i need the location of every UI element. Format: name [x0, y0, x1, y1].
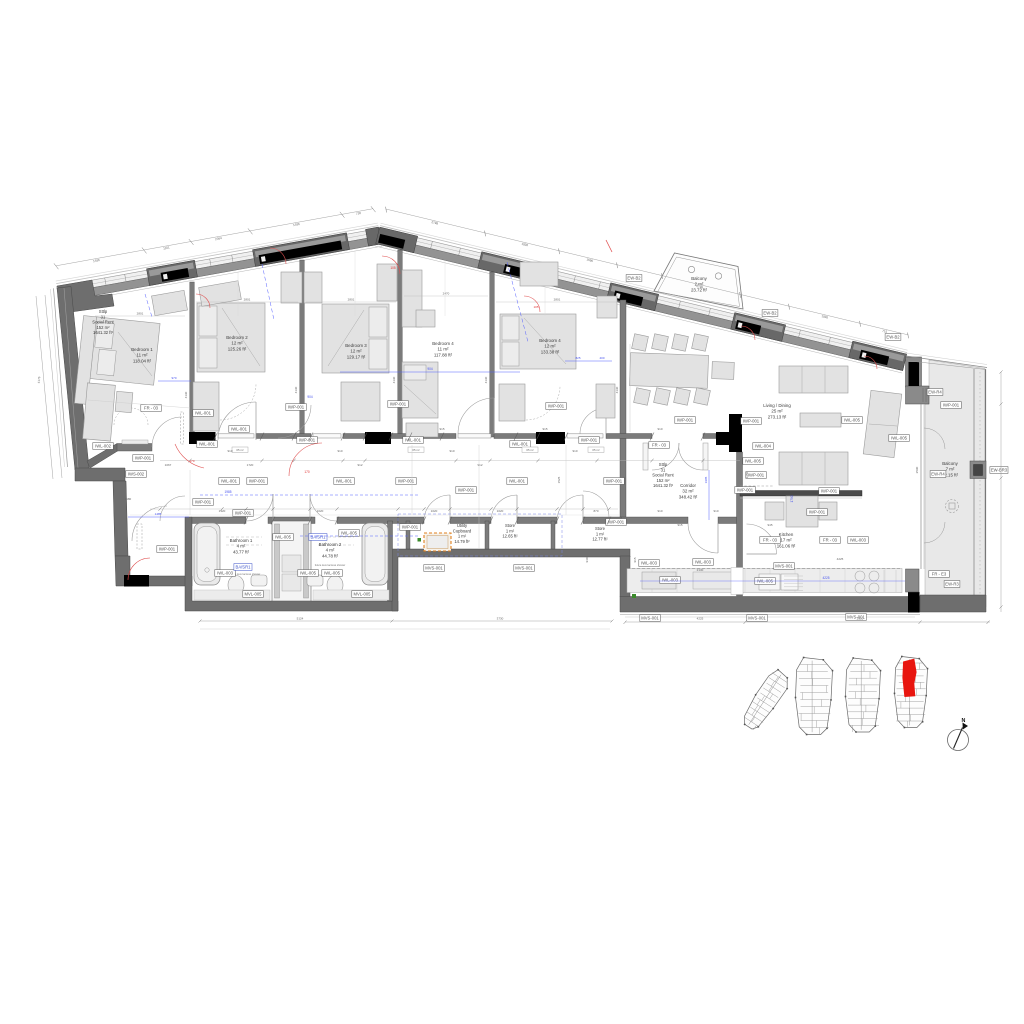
svg-text:IWP-001: IWP-001: [299, 438, 316, 443]
svg-text:Sttlp: Sttlp: [99, 309, 108, 314]
svg-text:1 m²: 1 m²: [596, 531, 605, 536]
svg-text:1020: 1020: [497, 509, 504, 513]
svg-text:IWP-001: IWP-001: [606, 479, 623, 484]
svg-text:904: 904: [307, 395, 313, 399]
svg-text:IWP-001: IWP-001: [548, 404, 565, 409]
svg-text:1020: 1020: [431, 509, 438, 513]
svg-text:Bedroom 1: Bedroom 1: [131, 347, 153, 352]
svg-text:IWS-002: IWS-002: [128, 472, 145, 477]
svg-text:1067: 1067: [165, 463, 172, 467]
svg-text:870: 870: [593, 509, 598, 513]
svg-text:825: 825: [575, 356, 580, 360]
svg-text:Bathroom 1: Bathroom 1: [230, 538, 253, 543]
svg-text:912: 912: [477, 463, 482, 467]
svg-text:2590: 2590: [915, 466, 919, 473]
svg-text:1 m²: 1 m²: [458, 534, 467, 539]
svg-text:170: 170: [189, 459, 194, 463]
svg-text:FR - 03: FR - 03: [763, 538, 778, 543]
svg-text:910: 910: [657, 427, 662, 431]
svg-text:IWL-005: IWL-005: [745, 459, 761, 464]
svg-text:2801: 2801: [554, 298, 561, 302]
svg-text:Balcony: Balcony: [691, 276, 707, 281]
svg-text:05 m²: 05 m²: [526, 448, 533, 452]
svg-text:1985: 1985: [224, 490, 231, 494]
svg-text:4225: 4225: [837, 557, 844, 561]
svg-text:915: 915: [542, 427, 547, 431]
svg-text:MVS-001: MVS-001: [515, 566, 533, 571]
svg-text:IWP-001: IWP-001: [943, 403, 960, 408]
svg-text:IWL-003: IWL-003: [641, 561, 657, 566]
svg-text:IWL-001: IWL-001: [512, 442, 528, 447]
svg-text:Social Rent: Social Rent: [652, 473, 674, 478]
svg-text:4225: 4225: [697, 617, 704, 621]
svg-text:Bedroom 2: Bedroom 2: [226, 335, 248, 340]
svg-text:IWL-003: IWL-003: [217, 571, 233, 576]
svg-text:MVS-001: MVS-001: [425, 566, 443, 571]
svg-text:MVS-001: MVS-001: [748, 616, 766, 621]
svg-text:MVS-001: MVS-001: [775, 564, 793, 569]
svg-text:IWL-003: IWL-003: [662, 578, 678, 583]
svg-text:IWL-001: IWL-001: [509, 479, 525, 484]
svg-text:1180: 1180: [125, 497, 132, 501]
svg-text:IWL-001: IWL-001: [199, 442, 215, 447]
svg-text:4130: 4130: [392, 376, 396, 383]
svg-text:MVS-001: MVS-001: [641, 616, 659, 621]
svg-text:25 m²: 25 m²: [771, 409, 783, 414]
svg-text:1905: 1905: [704, 476, 708, 483]
svg-text:IWP-001: IWP-001: [402, 525, 419, 530]
svg-text:Store: Store: [595, 526, 606, 531]
svg-text:EW-B2: EW-B2: [886, 335, 900, 340]
svg-text:4130: 4130: [615, 386, 619, 393]
svg-text:152 m²: 152 m²: [656, 478, 670, 483]
svg-text:IWP-001: IWP-001: [608, 520, 625, 525]
svg-text:IWP-001: IWP-001: [249, 479, 266, 484]
svg-text:105: 105: [533, 305, 538, 309]
svg-text:2801: 2801: [137, 312, 144, 316]
svg-text:Social Rent: Social Rent: [92, 320, 114, 325]
svg-text:FR - 03: FR - 03: [823, 538, 838, 543]
svg-text:12 m²: 12 m²: [231, 341, 243, 346]
svg-text:273.13 ft²: 273.13 ft²: [768, 414, 787, 419]
svg-text:IWP-001: IWP-001: [748, 473, 765, 478]
svg-text:05 m²: 05 m²: [412, 448, 419, 452]
svg-text:4 m²: 4 m²: [237, 544, 246, 549]
svg-text:117.88 ft²: 117.88 ft²: [434, 352, 453, 357]
svg-text:910: 910: [572, 449, 577, 453]
svg-text:IWL-001: IWL-001: [405, 438, 421, 443]
svg-text:31: 31: [661, 467, 666, 472]
svg-text:4176: 4176: [37, 376, 42, 383]
svg-text:IWL-005: IWL-005: [300, 571, 316, 576]
svg-text:910: 910: [449, 449, 454, 453]
svg-text:152 m²: 152 m²: [96, 325, 110, 330]
svg-text:Corridor: Corridor: [680, 483, 696, 488]
svg-text:BA/SR1: BA/SR1: [311, 535, 327, 540]
svg-text:Cupboard: Cupboard: [453, 528, 472, 533]
svg-text:1 m²: 1 m²: [506, 528, 515, 533]
svg-text:IWL-005: IWL-005: [844, 418, 860, 423]
svg-text:1485: 1485: [155, 512, 162, 516]
svg-text:IWL-001: IWL-001: [195, 411, 211, 416]
svg-text:Bedroom 4: Bedroom 4: [539, 338, 561, 343]
svg-text:3730: 3730: [497, 617, 504, 621]
svg-text:910: 910: [337, 449, 342, 453]
svg-text:910: 910: [227, 449, 232, 453]
svg-text:2801: 2801: [348, 298, 355, 302]
svg-text:EW-B2: EW-B2: [627, 276, 641, 281]
svg-text:1720: 1720: [247, 463, 254, 467]
svg-text:170: 170: [304, 470, 310, 474]
svg-text:1641.32 ft²: 1641.32 ft²: [93, 330, 114, 335]
svg-text:IWL-005: IWL-005: [324, 571, 340, 576]
svg-text:7 m²: 7 m²: [946, 467, 955, 472]
svg-text:915: 915: [439, 427, 444, 431]
svg-text:EW-BR3: EW-BR3: [991, 468, 1008, 473]
svg-text:2470: 2470: [443, 292, 450, 296]
svg-text:FR - E3: FR - E3: [932, 572, 947, 577]
svg-text:12 m²: 12 m²: [544, 344, 556, 349]
svg-text:129.17 ft²: 129.17 ft²: [347, 354, 366, 359]
svg-text:14.79 ft²: 14.79 ft²: [454, 539, 470, 544]
svg-text:IWP-001: IWP-001: [821, 489, 838, 494]
svg-text:IWL-005: IWL-005: [341, 531, 357, 536]
svg-text:31: 31: [101, 314, 106, 319]
svg-text:4130: 4130: [484, 376, 488, 383]
svg-text:IWP-001: IWP-001: [737, 488, 754, 493]
svg-text:4130: 4130: [184, 391, 188, 398]
svg-text:N: N: [962, 718, 966, 724]
svg-text:118.04 ft²: 118.04 ft²: [133, 358, 152, 363]
svg-text:IWL-002: IWL-002: [95, 444, 111, 449]
svg-text:11 m²: 11 m²: [137, 353, 148, 358]
svg-text:17 m²: 17 m²: [780, 538, 792, 543]
svg-text:IWL-004: IWL-004: [755, 444, 771, 449]
svg-text:Sttlp: Sttlp: [659, 462, 668, 467]
svg-text:Bathroom 2: Bathroom 2: [319, 542, 342, 547]
svg-text:EW-B2: EW-B2: [763, 311, 777, 316]
svg-text:1641.32 ft²: 1641.32 ft²: [653, 483, 674, 488]
svg-text:Kitchen: Kitchen: [779, 532, 794, 537]
svg-text:IWP-001: IWP-001: [288, 405, 305, 410]
svg-text:1020: 1020: [317, 509, 324, 513]
svg-text:940: 940: [585, 557, 589, 562]
svg-text:IWP-001: IWP-001: [135, 456, 152, 461]
svg-text:05 m²: 05 m²: [236, 448, 243, 452]
svg-text:Living / Dining: Living / Dining: [763, 403, 791, 408]
svg-text:12.65 ft²: 12.65 ft²: [502, 534, 518, 539]
svg-text:4130: 4130: [294, 386, 298, 393]
svg-text:1320: 1320: [219, 509, 226, 513]
svg-text:910: 910: [713, 509, 718, 513]
svg-text:4 m²: 4 m²: [326, 548, 335, 553]
svg-text:1250: 1250: [745, 471, 749, 478]
svg-text:IWP-001: IWP-001: [195, 500, 212, 505]
svg-text:4225: 4225: [822, 576, 829, 580]
svg-text:945: 945: [767, 523, 772, 527]
svg-text:44.78 ft²: 44.78 ft²: [322, 553, 339, 558]
svg-text:912: 912: [357, 463, 362, 467]
svg-text:IWP-001: IWP-001: [809, 510, 826, 515]
svg-text:IWL-001: IWL-001: [221, 479, 237, 484]
svg-text:IWP-001: IWP-001: [677, 418, 694, 423]
svg-text:Store: Store: [505, 523, 516, 528]
svg-text:IWL-005: IWL-005: [275, 535, 291, 540]
svg-text:1790: 1790: [790, 495, 794, 502]
svg-text:915: 915: [677, 523, 682, 527]
svg-text:904: 904: [427, 367, 433, 371]
svg-text:Balcony: Balcony: [942, 461, 958, 466]
svg-text:IWL-003: IWL-003: [850, 538, 866, 543]
svg-text:161.06 ft²: 161.06 ft²: [777, 543, 796, 548]
svg-text:MVL-005: MVL-005: [245, 592, 263, 597]
svg-text:Bedroom 3: Bedroom 3: [345, 343, 367, 348]
svg-text:EW-R3: EW-R3: [945, 582, 959, 587]
svg-text:IWL-005: IWL-005: [891, 436, 907, 441]
svg-text:125.26 ft²: 125.26 ft²: [228, 346, 247, 351]
svg-text:2801: 2801: [244, 298, 251, 302]
svg-text:1525: 1525: [557, 476, 561, 483]
svg-text:FR - 03: FR - 03: [652, 443, 667, 448]
svg-text:5124: 5124: [297, 617, 304, 621]
svg-text:IWP-001: IWP-001: [743, 419, 760, 424]
svg-text:105: 105: [390, 266, 396, 270]
svg-text:future level access shower: future level access shower: [315, 563, 346, 567]
svg-text:IWP-001: IWP-001: [159, 547, 176, 552]
svg-text:2130: 2130: [697, 568, 704, 572]
svg-text:05 m²: 05 m²: [592, 448, 599, 452]
svg-text:IWL-001: IWL-001: [336, 479, 352, 484]
svg-text:IWP-001: IWP-001: [458, 488, 475, 493]
svg-text:12.77 ft²: 12.77 ft²: [592, 537, 608, 542]
svg-text:915: 915: [633, 557, 637, 562]
svg-text:12 m²: 12 m²: [350, 349, 362, 354]
svg-text:32 m²: 32 m²: [682, 489, 694, 494]
svg-text:IWL-001: IWL-001: [231, 427, 247, 432]
svg-text:BA/SR1: BA/SR1: [236, 565, 252, 570]
svg-text:IWL-003: IWL-003: [695, 560, 711, 565]
svg-text:133.38 ft²: 133.38 ft²: [541, 349, 560, 354]
svg-text:910: 910: [657, 509, 662, 513]
svg-text:2310: 2310: [857, 617, 864, 621]
svg-text:IWP-001: IWP-001: [398, 479, 415, 484]
svg-text:EW-R4: EW-R4: [931, 472, 945, 477]
svg-text:IWP-001: IWP-001: [390, 402, 407, 407]
svg-text:FR - 03: FR - 03: [144, 406, 159, 411]
svg-text:Bedroom 4: Bedroom 4: [432, 341, 454, 346]
svg-text:43.77 ft²: 43.77 ft²: [233, 549, 250, 554]
svg-text:970: 970: [171, 376, 176, 380]
svg-text:EW-R4: EW-R4: [928, 390, 942, 395]
svg-text:Utility: Utility: [457, 523, 468, 528]
svg-text:IWP-001: IWP-001: [581, 438, 598, 443]
svg-text:MVL-005: MVL-005: [354, 592, 372, 597]
svg-text:400: 400: [599, 356, 604, 360]
svg-text:11 m²: 11 m²: [438, 347, 449, 352]
svg-text:348.42 ft²: 348.42 ft²: [679, 494, 698, 499]
